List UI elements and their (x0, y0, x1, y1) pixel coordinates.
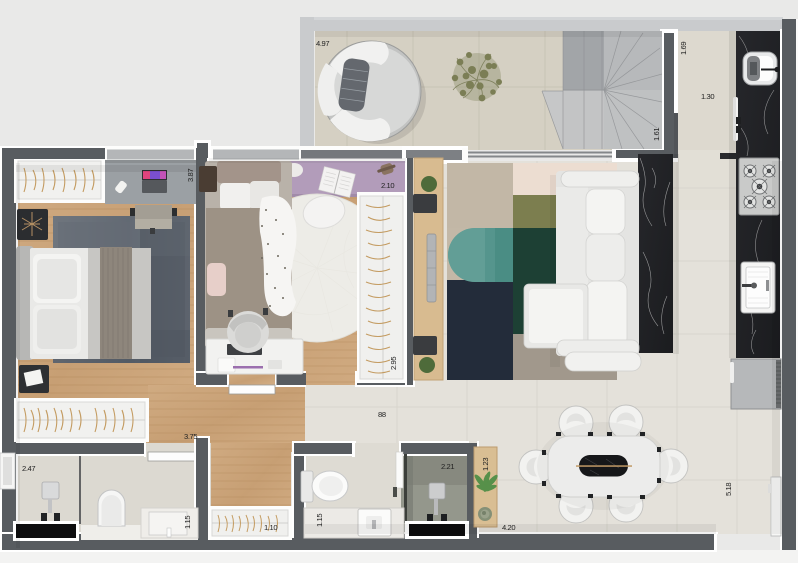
svg-text:3.87: 3.87 (186, 169, 195, 182)
svg-text:1.30: 1.30 (701, 92, 714, 101)
svg-text:3.75: 3.75 (184, 432, 197, 441)
svg-text:5.18: 5.18 (724, 483, 733, 496)
svg-text:1.61: 1.61 (652, 128, 661, 141)
svg-text:88: 88 (378, 410, 386, 419)
svg-text:1.10: 1.10 (264, 523, 277, 532)
svg-text:1.15: 1.15 (315, 514, 324, 527)
svg-text:2.21: 2.21 (441, 462, 454, 471)
svg-text:2.95: 2.95 (389, 357, 398, 370)
svg-text:2.47: 2.47 (22, 464, 35, 473)
svg-text:1.69: 1.69 (679, 42, 688, 55)
svg-text:4.97: 4.97 (316, 39, 329, 48)
svg-text:1.15: 1.15 (183, 516, 192, 529)
svg-text:4.20: 4.20 (502, 523, 515, 532)
svg-text:1.23: 1.23 (481, 458, 490, 471)
svg-text:2.10: 2.10 (381, 181, 394, 190)
